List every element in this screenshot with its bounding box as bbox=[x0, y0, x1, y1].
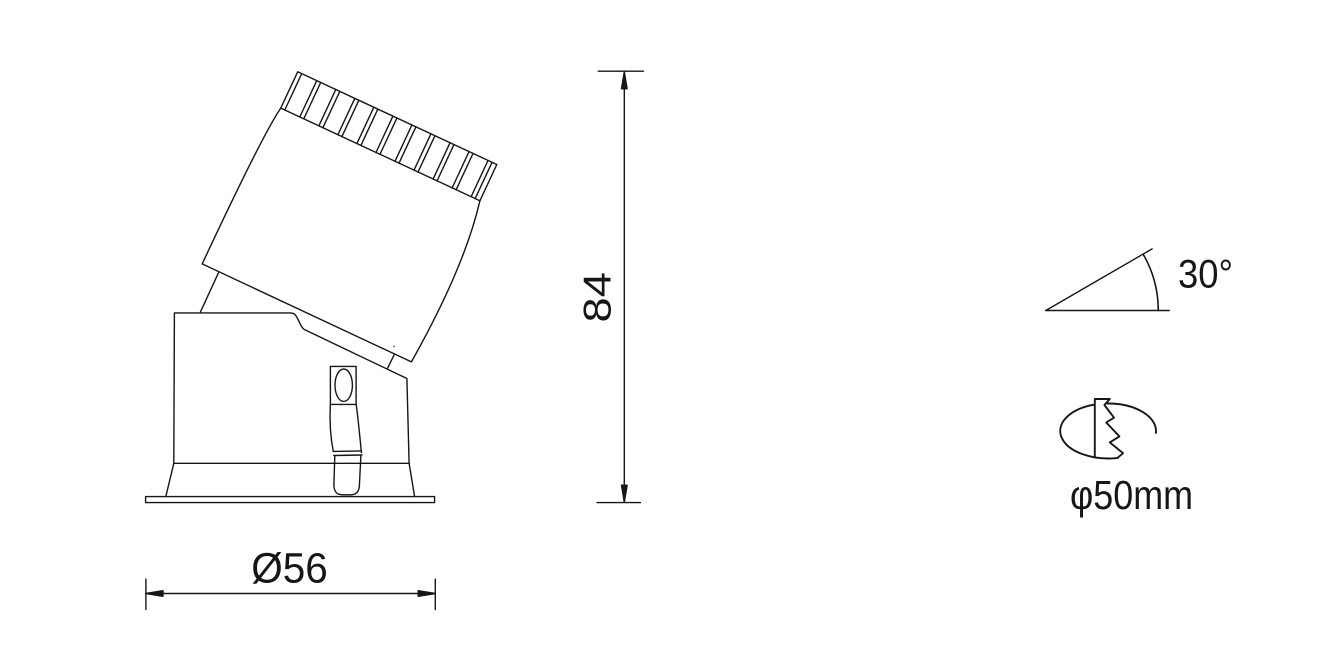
svg-text:84: 84 bbox=[577, 272, 620, 322]
svg-text:φ50mm: φ50mm bbox=[1070, 472, 1193, 518]
svg-text:30°: 30° bbox=[1178, 252, 1233, 296]
svg-text:Ø56: Ø56 bbox=[251, 544, 328, 592]
